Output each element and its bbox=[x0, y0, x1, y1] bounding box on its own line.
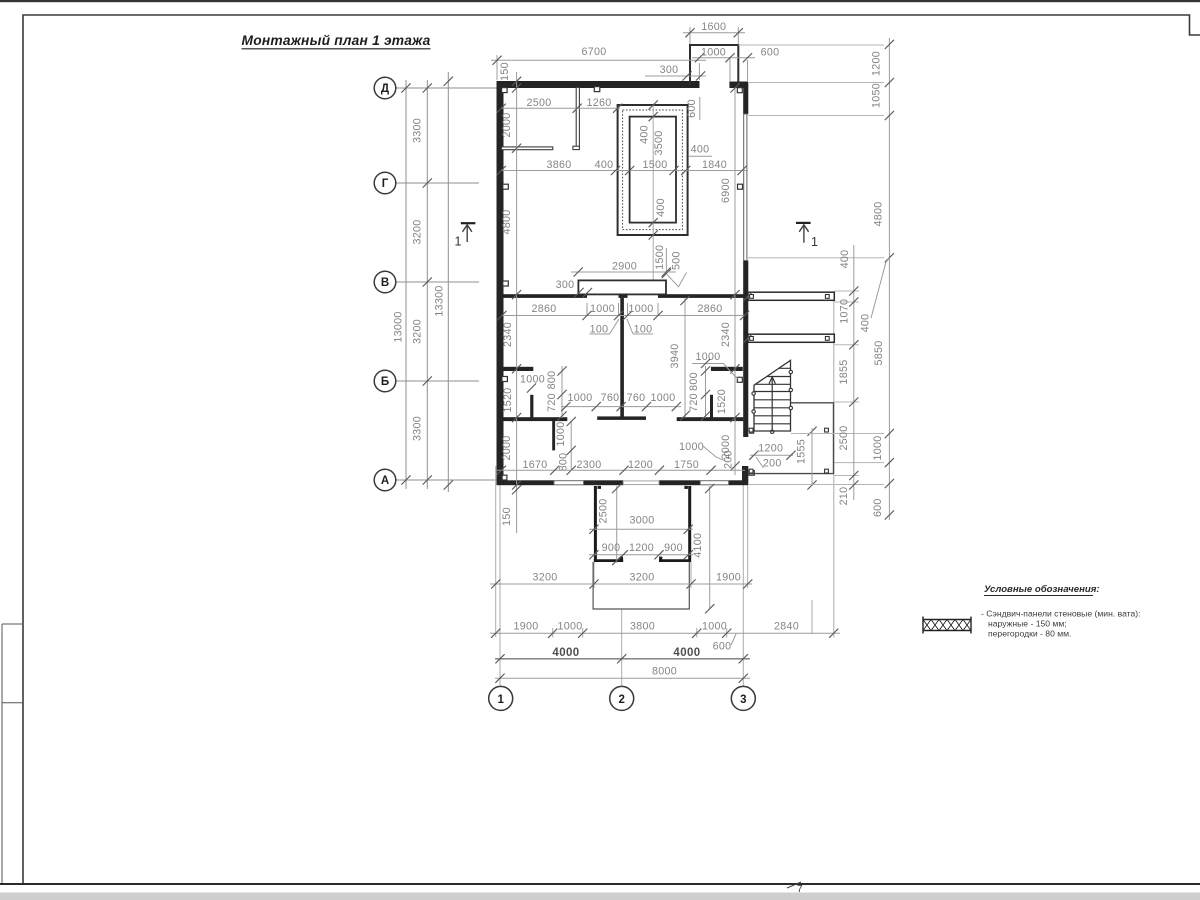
svg-text:1840: 1840 bbox=[702, 159, 727, 171]
svg-text:1855: 1855 bbox=[838, 360, 850, 385]
svg-text:760: 760 bbox=[601, 392, 620, 404]
svg-text:800: 800 bbox=[557, 453, 569, 472]
svg-text:3: 3 bbox=[740, 694, 746, 706]
svg-text:1: 1 bbox=[811, 235, 818, 249]
svg-text:1000: 1000 bbox=[629, 303, 654, 315]
svg-text:2900: 2900 bbox=[612, 261, 637, 273]
svg-text:перегородки - 80 мм.: перегородки - 80 мм. bbox=[988, 629, 1071, 639]
svg-text:3300: 3300 bbox=[411, 416, 423, 441]
svg-text:1000: 1000 bbox=[651, 392, 676, 404]
svg-text:1200: 1200 bbox=[758, 443, 783, 455]
svg-text:2500: 2500 bbox=[838, 426, 850, 451]
svg-text:3940: 3940 bbox=[669, 344, 681, 369]
svg-text:1600: 1600 bbox=[701, 21, 726, 33]
svg-text:1750: 1750 bbox=[674, 459, 699, 471]
svg-text:Г: Г bbox=[382, 178, 389, 190]
svg-text:2: 2 bbox=[618, 694, 624, 706]
svg-text:3200: 3200 bbox=[630, 572, 655, 584]
svg-text:2000: 2000 bbox=[501, 113, 513, 138]
svg-text:1500: 1500 bbox=[643, 159, 668, 171]
svg-text:1000: 1000 bbox=[568, 392, 593, 404]
svg-text:1000: 1000 bbox=[558, 621, 583, 633]
svg-text:13300: 13300 bbox=[434, 285, 446, 316]
svg-text:1050: 1050 bbox=[870, 83, 882, 108]
svg-text:150: 150 bbox=[499, 62, 511, 81]
svg-text:1520: 1520 bbox=[502, 388, 514, 413]
svg-text:150: 150 bbox=[501, 507, 513, 526]
svg-text:2500: 2500 bbox=[597, 499, 609, 524]
svg-text:1200: 1200 bbox=[629, 542, 654, 554]
svg-text:1555: 1555 bbox=[795, 439, 807, 464]
svg-text:300: 300 bbox=[556, 279, 575, 291]
svg-text:2860: 2860 bbox=[698, 303, 723, 315]
svg-text:2300: 2300 bbox=[577, 459, 602, 471]
svg-text:1: 1 bbox=[455, 235, 462, 249]
svg-text:3200: 3200 bbox=[411, 220, 423, 245]
svg-text:Б: Б bbox=[381, 376, 389, 388]
svg-text:1: 1 bbox=[497, 694, 504, 706]
svg-text:300: 300 bbox=[660, 64, 679, 76]
svg-text:210: 210 bbox=[838, 487, 850, 506]
svg-text:3200: 3200 bbox=[411, 319, 423, 344]
svg-text:1000: 1000 bbox=[590, 303, 615, 315]
svg-text:Монтажный план 1 этажа: Монтажный план 1 этажа bbox=[242, 33, 431, 48]
svg-text:600: 600 bbox=[872, 498, 884, 517]
svg-text:3800: 3800 bbox=[630, 621, 655, 633]
svg-text:400: 400 bbox=[639, 125, 651, 144]
svg-text:800: 800 bbox=[688, 372, 700, 391]
svg-text:1520: 1520 bbox=[716, 389, 728, 414]
svg-text:2340: 2340 bbox=[502, 322, 514, 347]
svg-text:500: 500 bbox=[671, 251, 683, 270]
svg-text:900: 900 bbox=[602, 542, 621, 554]
svg-text:Условные обозначения:: Условные обозначения: bbox=[984, 584, 1100, 595]
svg-text:200: 200 bbox=[723, 450, 735, 469]
svg-text:1200: 1200 bbox=[870, 51, 882, 76]
svg-text:6900: 6900 bbox=[720, 178, 732, 203]
svg-text:400: 400 bbox=[595, 159, 614, 171]
svg-text:600: 600 bbox=[686, 99, 698, 118]
svg-text:13000: 13000 bbox=[393, 311, 405, 342]
svg-text:4000: 4000 bbox=[552, 647, 579, 659]
svg-text:8000: 8000 bbox=[652, 666, 677, 678]
svg-text:1260: 1260 bbox=[587, 97, 612, 109]
svg-text:1000: 1000 bbox=[679, 441, 704, 453]
svg-text:В: В bbox=[381, 277, 389, 289]
svg-text:400: 400 bbox=[655, 198, 667, 217]
svg-text:1500: 1500 bbox=[654, 245, 666, 270]
svg-text:1900: 1900 bbox=[716, 572, 741, 584]
svg-text:1000: 1000 bbox=[520, 374, 545, 386]
svg-text:1200: 1200 bbox=[628, 459, 653, 471]
svg-text:4800: 4800 bbox=[872, 202, 884, 227]
svg-text:5850: 5850 bbox=[873, 341, 885, 366]
svg-text:900: 900 bbox=[664, 542, 683, 554]
svg-text:1900: 1900 bbox=[514, 621, 539, 633]
svg-text:1670: 1670 bbox=[523, 459, 548, 471]
svg-text:2500: 2500 bbox=[527, 97, 552, 109]
svg-text:3860: 3860 bbox=[547, 159, 572, 171]
svg-text:720: 720 bbox=[688, 393, 700, 412]
svg-text:400: 400 bbox=[860, 314, 872, 333]
svg-text:1070: 1070 bbox=[839, 299, 851, 324]
svg-text:А: А bbox=[381, 475, 389, 487]
svg-text:1000: 1000 bbox=[702, 621, 727, 633]
svg-text:2000: 2000 bbox=[501, 436, 513, 461]
svg-text:4000: 4000 bbox=[673, 647, 700, 659]
svg-text:3000: 3000 bbox=[630, 515, 655, 527]
svg-text:2860: 2860 bbox=[532, 303, 557, 315]
svg-text:400: 400 bbox=[839, 250, 851, 269]
svg-text:800: 800 bbox=[546, 371, 558, 390]
svg-text:3500: 3500 bbox=[653, 131, 665, 156]
svg-text:760: 760 bbox=[627, 392, 646, 404]
svg-text:3300: 3300 bbox=[411, 118, 423, 143]
svg-text:Д: Д bbox=[381, 83, 389, 95]
svg-text:- Сэндвич-панели стеновые (мин: - Сэндвич-панели стеновые (мин. вата): bbox=[981, 609, 1141, 619]
svg-text:3200: 3200 bbox=[533, 572, 558, 584]
svg-text:4800: 4800 bbox=[501, 210, 513, 235]
svg-text:600: 600 bbox=[713, 641, 732, 653]
svg-text:2340: 2340 bbox=[720, 322, 732, 347]
svg-text:4100: 4100 bbox=[692, 533, 704, 558]
svg-text:наружные - 150 мм;: наружные - 150 мм; bbox=[988, 619, 1067, 629]
svg-text:1000: 1000 bbox=[872, 436, 884, 461]
svg-text:600: 600 bbox=[761, 46, 780, 58]
svg-text:6700: 6700 bbox=[582, 46, 607, 58]
svg-text:200: 200 bbox=[763, 458, 782, 470]
svg-text:1000: 1000 bbox=[555, 422, 567, 447]
svg-text:2840: 2840 bbox=[774, 621, 799, 633]
svg-text:720: 720 bbox=[546, 393, 558, 412]
svg-text:400: 400 bbox=[691, 144, 710, 156]
svg-text:1000: 1000 bbox=[701, 46, 726, 58]
